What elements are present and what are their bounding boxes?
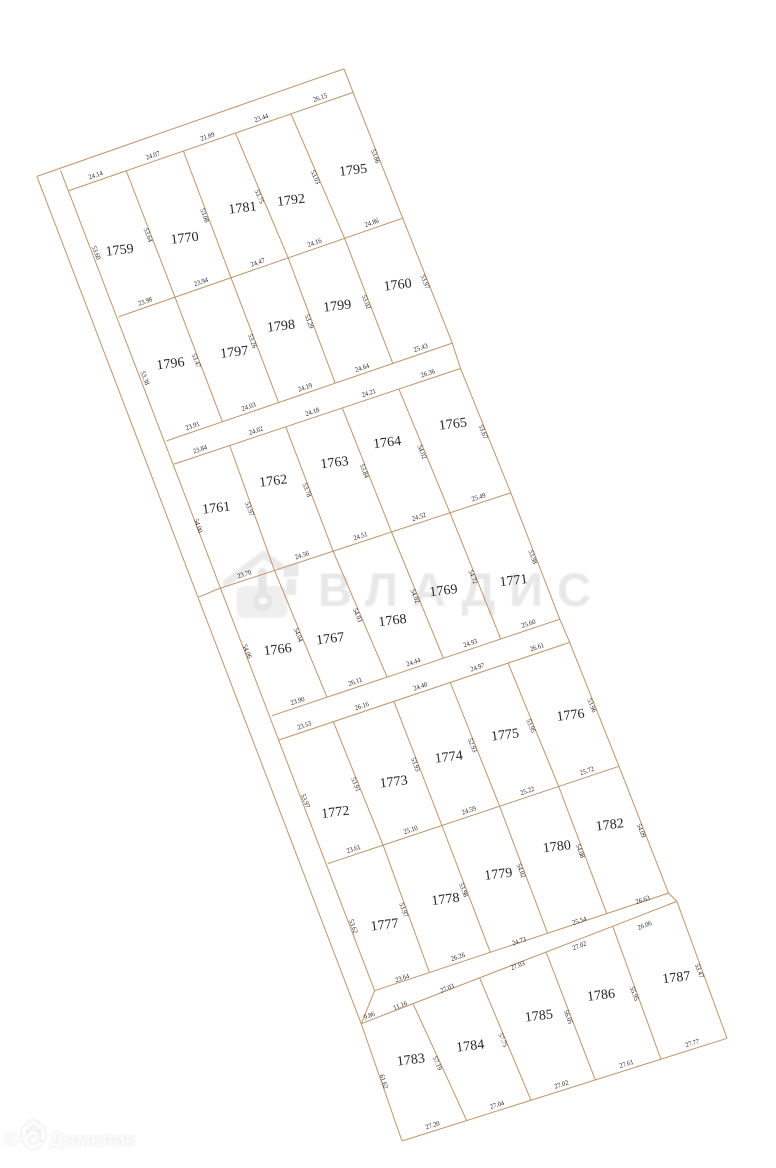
svg-text:ВЛАДИС: ВЛАДИС [318,563,605,616]
svg-text:Домклик: Домклик [50,1130,136,1151]
svg-text:Ⓒ: Ⓒ [4,1130,19,1148]
